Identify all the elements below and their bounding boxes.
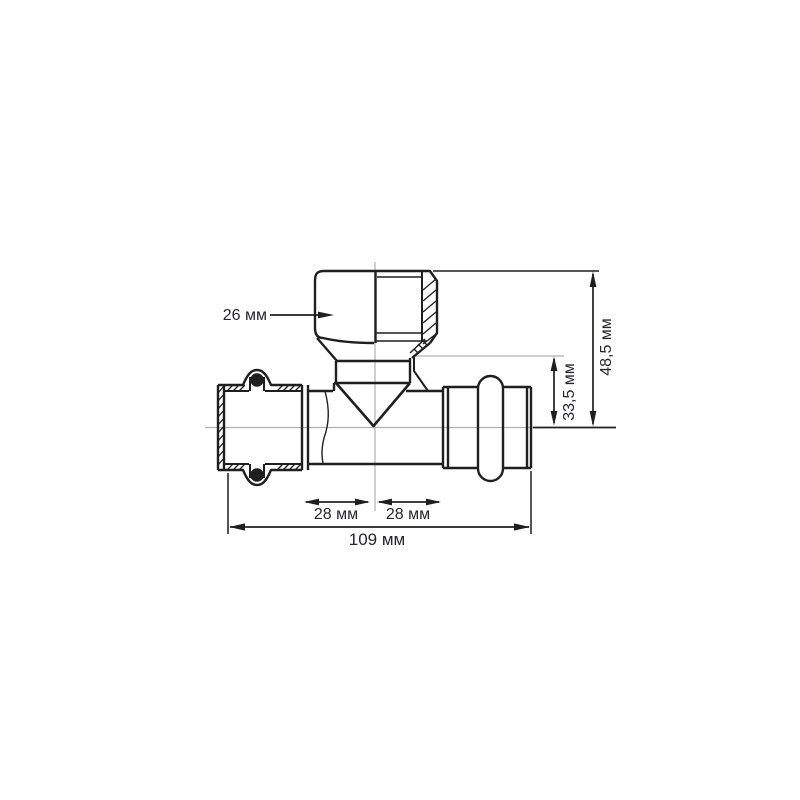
arrow-up: [590, 272, 597, 288]
right-press-socket: [443, 376, 531, 481]
funnel-left-slope: [317, 338, 337, 361]
dim-label-33mm: 33,5 мм: [561, 363, 578, 421]
arrow-left: [304, 499, 319, 506]
o-ring-seal-bottom: [250, 468, 264, 482]
dimension-26mm: 26 мм: [223, 307, 334, 324]
branch-threaded-connection: [315, 271, 437, 426]
arrow-left: [229, 523, 245, 530]
dim-label-48mm: 48,5 мм: [598, 318, 615, 376]
dim-label-109mm: 109 мм: [349, 530, 405, 549]
dim-label-28mm-right: 28 мм: [386, 506, 430, 523]
drawing-canvas: 26 мм 48,5 мм 33,5 мм 28 мм 28 мм 109 мм: [0, 0, 800, 800]
dim-label-26mm: 26 мм: [223, 307, 267, 324]
dim-label-28mm-left: 28 мм: [314, 506, 358, 523]
dimension-28mm-left: 28 мм: [304, 499, 370, 523]
nut-outline-right: [324, 271, 437, 343]
dimension-109mm: 109 мм: [228, 471, 531, 549]
arrow-left: [377, 499, 392, 506]
dimension-48mm: 48,5 мм: [433, 271, 615, 427]
arrow-up: [551, 357, 558, 372]
arrow-down: [551, 411, 558, 426]
arrow-right: [355, 499, 370, 506]
dimension-28mm-right: 28 мм: [377, 499, 441, 523]
technical-drawing: 26 мм 48,5 мм 33,5 мм 28 мм 28 мм 109 мм: [0, 0, 800, 800]
arrow-down: [590, 411, 597, 427]
arrow-right: [514, 523, 530, 530]
arrow-right: [426, 499, 441, 506]
press-bulge: [478, 376, 503, 481]
thread-hatch: [423, 279, 436, 344]
nut-inner-lines: [376, 277, 427, 341]
cone-transition: [336, 383, 410, 426]
branch-neck-flare: [414, 357, 428, 391]
leader-arrow: [318, 312, 334, 319]
branch-neck: [334, 358, 410, 391]
o-ring-seal-top: [250, 373, 264, 387]
nut-outline-left: [315, 271, 374, 343]
